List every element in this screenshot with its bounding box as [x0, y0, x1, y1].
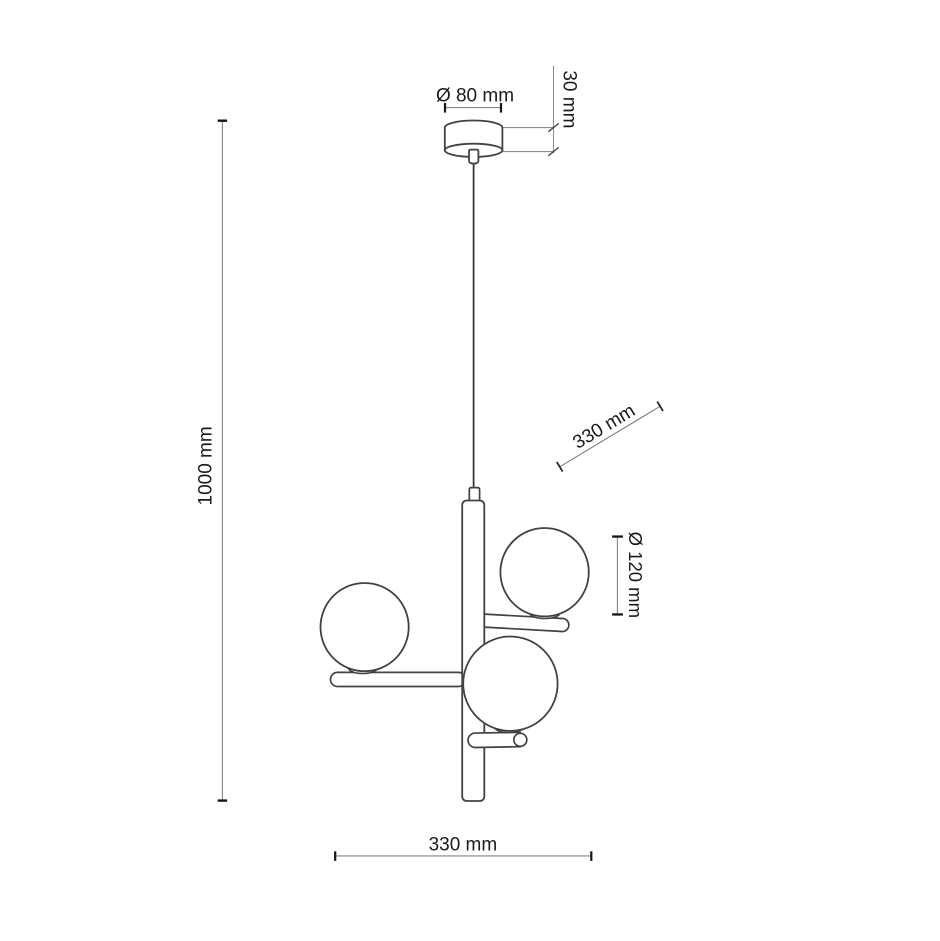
svg-text:30 mm: 30 mm	[559, 70, 580, 128]
svg-text:1000 mm: 1000 mm	[196, 426, 217, 505]
svg-text:330 mm: 330 mm	[429, 834, 498, 855]
svg-text:Ø 120 mm: Ø 120 mm	[625, 532, 646, 618]
svg-text:Ø 80 mm: Ø 80 mm	[436, 86, 514, 107]
